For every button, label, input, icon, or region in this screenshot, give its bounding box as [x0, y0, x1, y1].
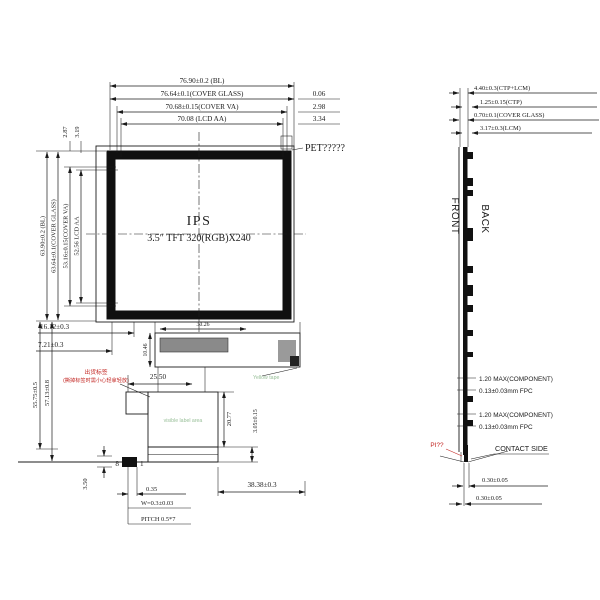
dim-bl-width: 76.90±0.2 (BL): [180, 77, 225, 85]
connector-corner-block: [290, 356, 299, 366]
dim-035: 0.35: [146, 486, 157, 493]
fpc-bottom-ext: [464, 463, 469, 506]
dim-030-1: 0.30±0.05: [482, 477, 508, 484]
dim-1612: 16.12±0.3: [40, 323, 70, 331]
dim-trace-width: W=0.3±0.03: [141, 500, 173, 507]
dim-coverglass-width: 76.64±0.1(COVER GLASS): [161, 90, 244, 98]
back-side-label: BACK: [479, 204, 490, 233]
fpc-step-block: [126, 392, 148, 414]
dim-fpc-2: 0.13±0.03mm FPC: [479, 424, 533, 431]
dim-721: 7.21±0.3: [38, 341, 64, 349]
dim-2550: 25.50: [150, 373, 167, 381]
pi-note: PI??: [430, 442, 444, 449]
back-components: [468, 152, 474, 426]
dim-offset-287: 2.87: [62, 126, 69, 138]
center-lines: [86, 132, 306, 332]
pin-1-label: 1: [140, 460, 144, 468]
side-top-ext: [460, 88, 468, 147]
contact-side-label: CONTACT SIDE: [495, 444, 548, 453]
lcd-module-drawing: IPS 3.5″ TFT 320(RGB)X240 76.90±0.2 (BL)…: [0, 0, 600, 600]
dim-lcdaa-width: 70.08 (LCD AA): [178, 115, 228, 123]
dim-3026: 30.26: [196, 322, 209, 328]
fpc-contact-tip: [464, 445, 468, 462]
dim-350: 3.50: [82, 478, 89, 489]
red-note-line2: (撕掉标签时需小心轻拿轻放): [63, 376, 129, 384]
dim-lcm-thk: 3.17±0.3(LCM): [480, 125, 521, 132]
dim-coverva-width: 70.68±0.15(COVER VA): [166, 103, 240, 111]
dim-5713: 57.13±0.8: [44, 380, 51, 406]
dim-bl-height: 63.90±0.2 (BL): [40, 216, 47, 256]
pet-label: PET?????: [305, 143, 346, 154]
dim-lcdaa-height: 52.56 LCD AA: [74, 216, 81, 256]
dim-pitch: PITCH 0.5*7: [141, 516, 176, 523]
dim-1046: 10.46: [143, 343, 149, 356]
panel-subtitle: 3.5″ TFT 320(RGB)X240: [147, 233, 251, 244]
pin-dim-verticals: [128, 467, 137, 524]
dim-305: 3.05±0.15: [253, 409, 259, 433]
red-note-leader: [120, 384, 150, 397]
label-area-note: visible label area: [164, 418, 203, 424]
panel-title: IPS: [187, 214, 212, 229]
pet-tab-outline: [281, 136, 292, 149]
dim-coverglass-thk: 0.70±0.1(COVER GLASS): [474, 112, 544, 119]
dim-offset-006: 0.06: [313, 90, 326, 98]
dim-fpc-1: 0.13±0.03mm FPC: [479, 388, 533, 395]
pin-8-label: 8: [115, 460, 119, 468]
dim-2077: 20.77: [226, 411, 233, 426]
contact-side-leader: [471, 454, 549, 459]
dim-coverva-height: 53.16±0.15(COVER VA): [63, 204, 70, 269]
connector-label-area: [160, 338, 228, 352]
dim-350-ticks: [97, 456, 112, 467]
dim-5575: 55.75±0.5: [32, 382, 39, 408]
engineering-drawing-canvas: IPS 3.5″ TFT 320(RGB)X240 76.90±0.2 (BL)…: [0, 0, 600, 600]
dim-offset-334: 3.34: [313, 115, 326, 123]
dim-3838: 38.38±0.3: [247, 481, 277, 489]
pin-connector-block: [122, 457, 137, 467]
front-view: IPS 3.5″ TFT 320(RGB)X240 76.90±0.2 (BL)…: [18, 77, 346, 524]
dim-offset-298: 2.98: [313, 103, 326, 111]
front-side-label: FRONT: [449, 198, 460, 235]
side-view: FRONT BACK 4.40±0.3(CTP+LCM) 1.25±0.15(C…: [430, 85, 599, 506]
dim-comp-1: 1.20 MAX(COMPONENT): [479, 376, 553, 383]
module-cross-section: [463, 147, 468, 455]
dim-coverglass-height: 63.64±0.1(COVER GLASS): [51, 199, 58, 273]
dim-030-2: 0.30±0.05: [476, 495, 502, 502]
mid-extension-lines: [112, 322, 134, 355]
dim-ctp: 1.25±0.15(CTP): [480, 99, 522, 106]
dim-comp-2: 1.20 MAX(COMPONENT): [479, 412, 553, 419]
tape-note: Yellow tape: [253, 375, 279, 381]
dim-offset-319: 3.19: [74, 126, 81, 137]
dim-ctp-lcm: 4.40±0.3(CTP+LCM): [474, 85, 530, 92]
red-note-line1: 出货标签: [84, 368, 107, 376]
pi-leader: [446, 449, 462, 456]
